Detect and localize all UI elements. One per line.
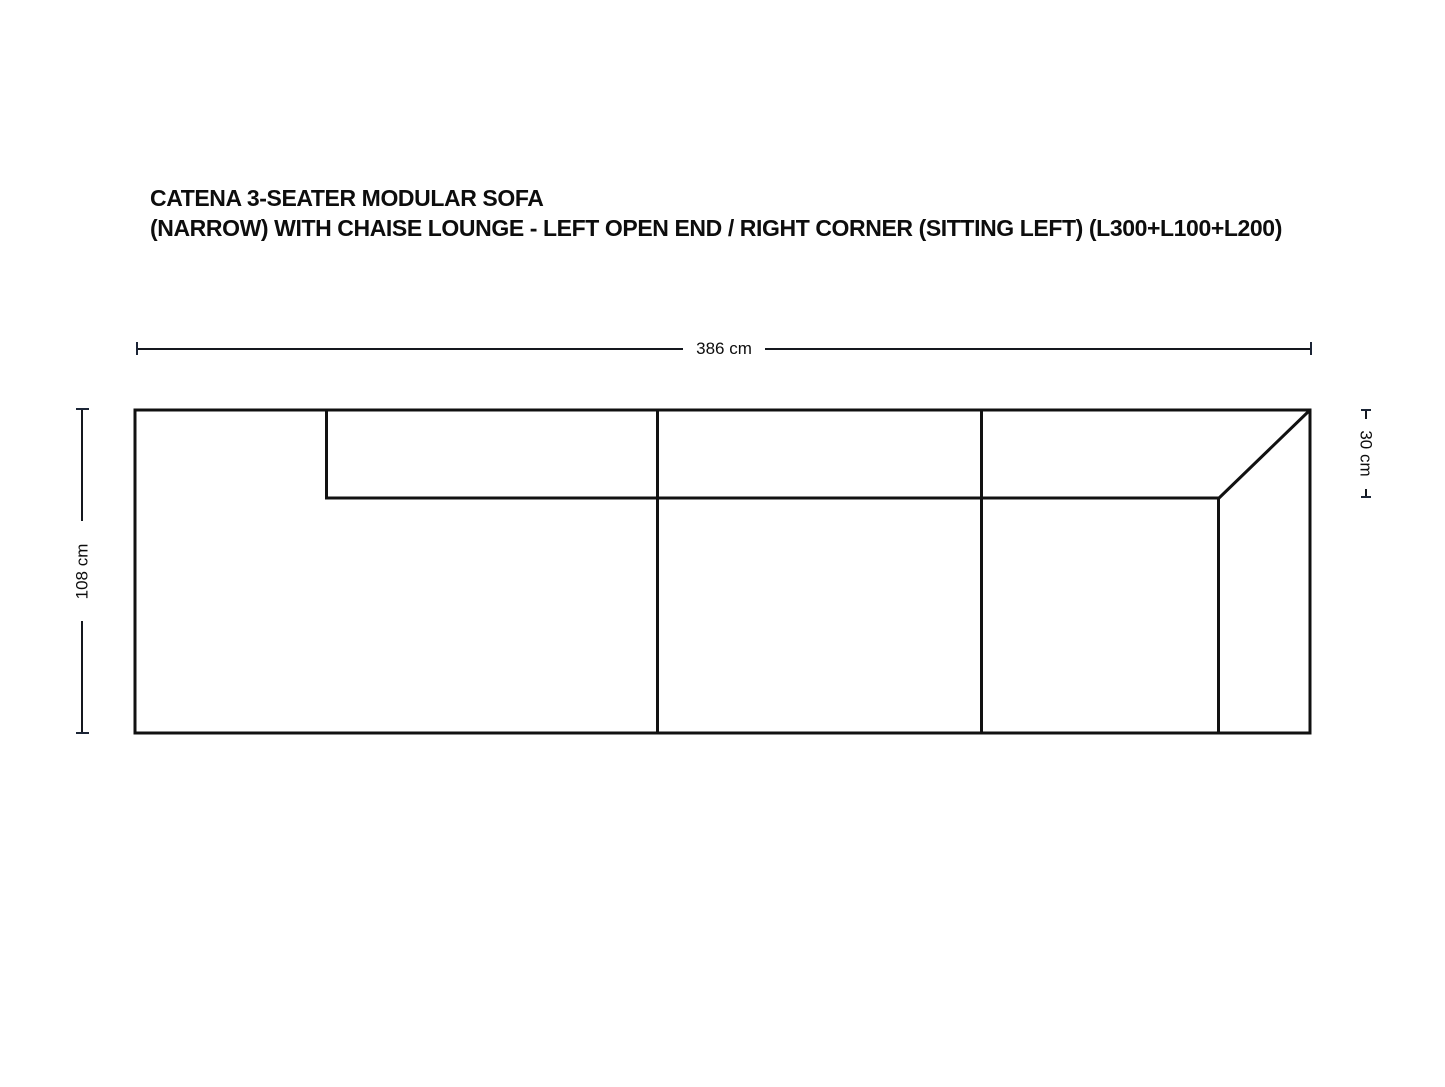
page: CATENA 3-SEATER MODULAR SOFA (NARROW) WI… (0, 0, 1445, 1087)
corner-diagonal-line (1218, 410, 1310, 499)
sofa-outline (135, 410, 1310, 733)
sofa-top-view-drawing (0, 0, 1445, 1087)
